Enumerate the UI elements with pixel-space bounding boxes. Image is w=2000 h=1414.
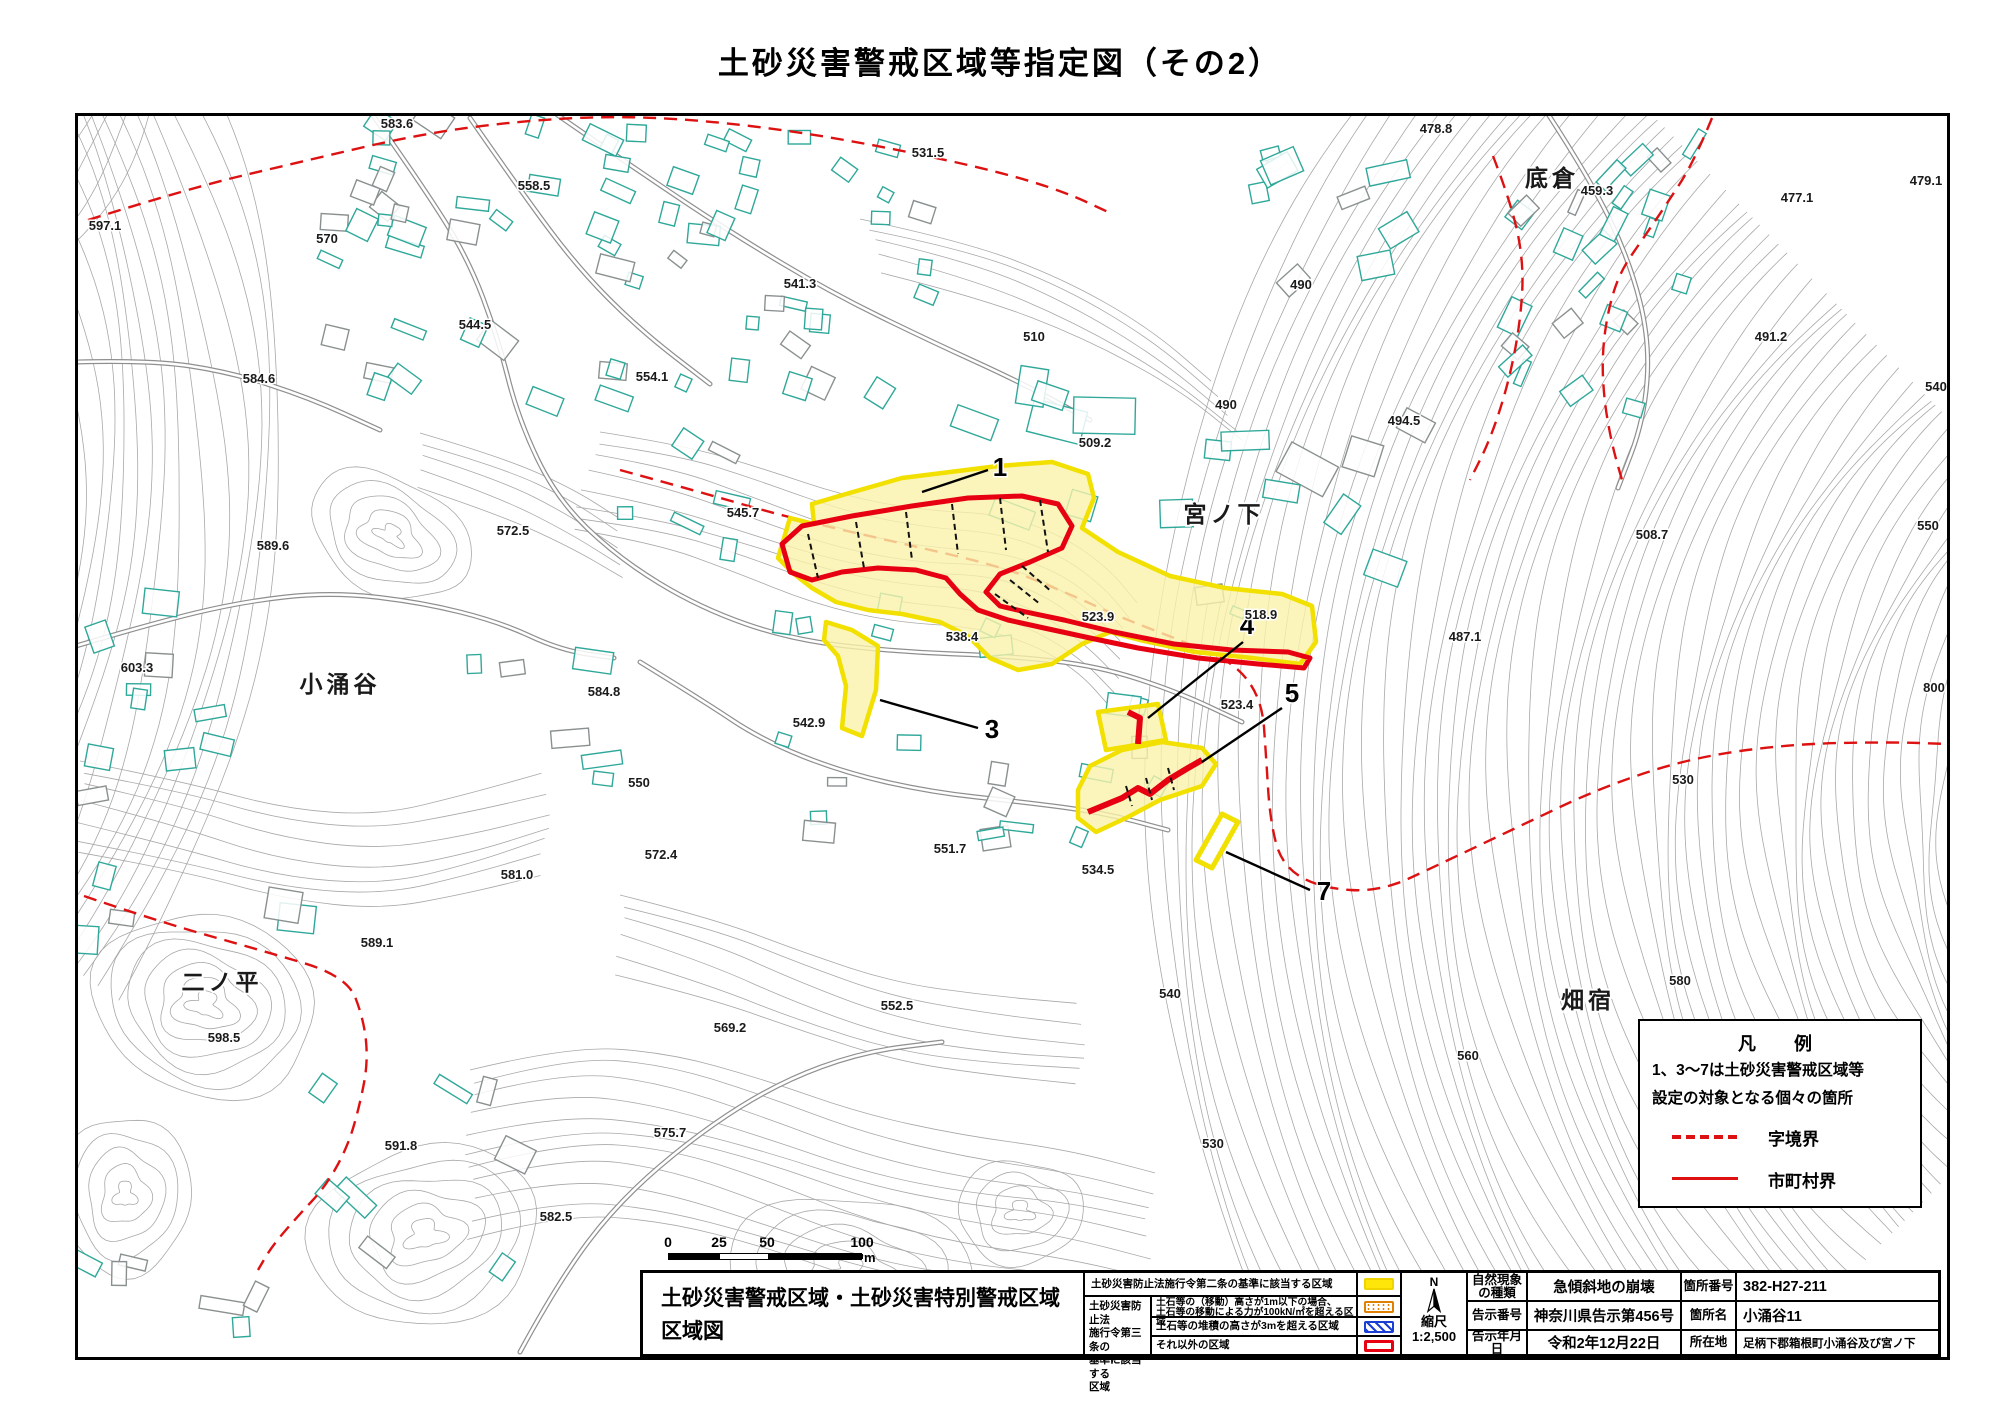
map-sheet: 土砂災害警戒区域等指定図（その2） 13457小涌谷二ノ平宮ノ下底倉畑宿583.… (0, 0, 2000, 1414)
site-number: 1 (993, 452, 1007, 482)
contour-line (1329, 116, 1639, 1357)
elevation-label: 598.5 (208, 1030, 241, 1045)
elevation-label: 582.5 (540, 1209, 573, 1224)
building (320, 213, 348, 231)
site-number: 3 (985, 714, 999, 744)
elevation-label: 603.3 (121, 660, 154, 675)
warning-zone-3 (824, 622, 878, 736)
contour-line (85, 784, 550, 847)
elevation-label: 581.0 (501, 867, 534, 882)
building (1364, 549, 1407, 587)
info-label-location: 所在地 (1682, 1331, 1737, 1354)
elevation-label: 509.2 (1079, 435, 1112, 450)
building (828, 778, 847, 787)
elevation-label: 584.8 (588, 684, 621, 699)
place-label: 畑宿 (1561, 987, 1615, 1013)
elevation-label: 540 (1159, 986, 1181, 1001)
contour-ring (391, 1203, 469, 1266)
building (672, 428, 704, 459)
contour-line (471, 1097, 1145, 1218)
elevation-label: 569.2 (714, 1020, 747, 1035)
building (243, 1281, 269, 1312)
building (526, 387, 564, 417)
contour-line (621, 934, 1084, 1058)
building (456, 196, 490, 211)
scale-tick-0: 0 (664, 1234, 672, 1250)
building (595, 385, 633, 412)
building (581, 750, 622, 769)
info-label-site-number: 箇所番号 (1682, 1273, 1737, 1302)
dashed-boundary-symbol (1672, 1135, 1738, 1139)
contour-line (474, 1060, 1153, 1194)
contour-line (620, 895, 1077, 1003)
building (164, 748, 196, 771)
building (586, 212, 619, 243)
contour-line (1929, 511, 1947, 1081)
contour-ring (89, 1147, 166, 1242)
building (735, 185, 758, 214)
building (796, 617, 813, 635)
elevation-label: 570 (316, 231, 338, 246)
building (582, 124, 623, 156)
elevation-label: 572.4 (645, 847, 678, 862)
building (1073, 397, 1135, 434)
site-leader-line (1202, 708, 1282, 762)
zone3-group-label-cell: 土砂災害防止法 施行令第三条の 基準に該当する 区域 (1085, 1297, 1152, 1354)
contour-ring (90, 914, 314, 1100)
scale-unit: m (864, 1250, 876, 1265)
elevation-label: 558.5 (518, 178, 551, 193)
map-legend-box: 凡 例 1、3〜7は土砂災害警戒区域等 設定の対象となる個々の箇所 字境界 市町… (1638, 1019, 1922, 1208)
place-label: 二ノ平 (182, 969, 263, 995)
yellow-zone-swatch (1364, 1278, 1394, 1290)
scale-tick-50: 50 (759, 1234, 775, 1250)
scale-bar-rule (668, 1253, 862, 1260)
building (1342, 436, 1384, 477)
building (626, 124, 646, 142)
elevation-label: 589.6 (257, 538, 290, 553)
elevation-label: 572.5 (497, 523, 530, 538)
elevation-label: 479.1 (1910, 173, 1943, 188)
elevation-label: 550 (628, 775, 650, 790)
contour-line (78, 116, 120, 300)
elevation-label: 490 (1290, 277, 1312, 292)
elevation-label: 583.6 (381, 116, 414, 131)
compass-scale-cell: N 縮尺 1:2,500 (1402, 1273, 1468, 1354)
building (78, 925, 99, 954)
building (746, 316, 759, 330)
contour-line (1177, 116, 1512, 1357)
warning-zone-5 (1078, 742, 1216, 832)
info-label-phenomenon: 自然現象の種類 (1468, 1273, 1528, 1302)
building (477, 1076, 497, 1105)
swatch-cell (1358, 1337, 1402, 1354)
contour-ring (372, 523, 405, 548)
building (618, 507, 633, 520)
orange-dotted-swatch (1364, 1301, 1394, 1313)
building (1337, 186, 1370, 209)
scale-tick-100: 100 (850, 1234, 873, 1250)
elevation-label: 551.7 (934, 841, 967, 856)
building (1378, 212, 1419, 249)
elevation-label: 540 (1925, 379, 1947, 394)
building (909, 201, 936, 224)
contour-line (1919, 502, 1947, 1093)
sheet-title-line2: 区域図 (661, 1315, 1083, 1348)
building (604, 154, 631, 172)
building (84, 744, 113, 771)
elevation-label: 523.4 (1221, 697, 1254, 712)
elevation-label: 510 (1023, 329, 1045, 344)
building (804, 308, 823, 330)
building (1366, 160, 1410, 186)
info-value-notice-number: 神奈川県告示第456号 (1528, 1302, 1682, 1331)
info-value-notice-date: 令和2年12月22日 (1528, 1331, 1682, 1354)
contour-ring (369, 1190, 485, 1284)
building (194, 705, 226, 722)
elevation-label: 508.7 (1636, 527, 1669, 542)
building-layer (78, 116, 1706, 1337)
elevation-label: 542.9 (793, 715, 826, 730)
elevation-label: 490 (1215, 397, 1237, 412)
elevation-label: 531.5 (912, 145, 945, 160)
building (489, 1253, 515, 1281)
contour-ring (128, 939, 285, 1075)
building (499, 660, 525, 677)
elevation-label: 544.5 (459, 317, 492, 332)
elevation-label: 538.4 (946, 629, 979, 644)
contour-ring (112, 1181, 138, 1205)
building (1497, 297, 1532, 337)
building (309, 1073, 337, 1103)
building (317, 250, 343, 268)
building (864, 377, 895, 409)
building (596, 254, 635, 282)
elevation-label: 534.5 (1082, 862, 1115, 877)
elevation-label: 591.8 (385, 1138, 418, 1153)
scale-label: 縮尺 (1421, 1314, 1447, 1329)
contour-ring (977, 1172, 1070, 1251)
contour-line (423, 445, 618, 531)
elevation-label: 580 (1669, 973, 1691, 988)
building (832, 157, 858, 182)
building (781, 331, 811, 359)
building (1623, 398, 1645, 418)
contour-line (616, 956, 1079, 1068)
building (1642, 189, 1671, 221)
sheet-title-line1: 土砂災害警戒区域・土砂災害特別警戒区域 (661, 1282, 1083, 1315)
elevation-label: 491.2 (1755, 329, 1788, 344)
elevation-label: 554.1 (636, 369, 669, 384)
elevation-label: 541.3 (784, 276, 817, 291)
building (359, 1236, 395, 1269)
building (78, 786, 109, 806)
building (200, 733, 234, 757)
building (765, 295, 785, 311)
contour-line (615, 975, 1075, 1084)
info-label-site-name: 箇所名 (1682, 1302, 1737, 1331)
elevation-label: 800 (1923, 680, 1945, 695)
building (131, 688, 148, 710)
building (346, 209, 379, 242)
scale-bar: 0 25 50 100 m (640, 1234, 900, 1270)
building (659, 201, 680, 226)
contour-line (420, 433, 620, 519)
building (232, 1317, 250, 1338)
elevation-label: 530 (1202, 1136, 1224, 1151)
contour-ring (403, 1219, 450, 1250)
building (490, 210, 513, 231)
contour-ring (312, 467, 472, 599)
elevation-label: 477.1 (1781, 190, 1814, 205)
building (199, 1296, 245, 1316)
contour-ring (78, 1120, 192, 1279)
building (573, 647, 614, 674)
scale-bar-segment (768, 1254, 863, 1259)
building (1620, 144, 1653, 176)
contour-ring (356, 510, 422, 558)
legend-item-label: 字境界 (1768, 1125, 1819, 1150)
building (871, 211, 890, 225)
building (803, 820, 836, 843)
building (551, 728, 590, 748)
building (494, 1136, 536, 1174)
elevation-label: 550 (1917, 518, 1939, 533)
legend-note-line1: 1、3〜7は土砂災害警戒区域等 (1652, 1058, 1920, 1084)
contour-ring (329, 1160, 521, 1314)
building (142, 588, 179, 617)
scale-tick-25: 25 (711, 1234, 727, 1250)
building (917, 259, 932, 276)
contour-line (1258, 116, 1578, 1357)
building (264, 887, 303, 923)
building (1221, 430, 1269, 451)
elevation-label: 584.6 (243, 371, 276, 386)
contour-line (1320, 116, 1624, 1357)
map-frame: 13457小涌谷二ノ平宮ノ下底倉畑宿583.6558.5597.1570544.… (75, 113, 1950, 1360)
elevation-label: 518.9 (1245, 607, 1278, 622)
contour-ring (101, 1164, 152, 1222)
red-outline-swatch (1364, 1340, 1394, 1352)
site-leader-line (1226, 852, 1310, 890)
building (670, 512, 703, 535)
elevation-label: 560 (1457, 1048, 1479, 1063)
contour-line (860, 219, 1211, 381)
info-value-site-number: 382-H27-211 (1737, 1273, 1938, 1302)
north-arrow-icon (1425, 1288, 1443, 1314)
elevation-label: 545.7 (727, 505, 760, 520)
building (877, 187, 894, 203)
contour-line (1202, 116, 1551, 1357)
building (1553, 228, 1582, 260)
contour-line (119, 116, 279, 1000)
info-value-location: 足柄下郡箱根町小涌谷及び宮ノ下 (1737, 1331, 1938, 1354)
building (720, 538, 737, 562)
contour-line (1343, 116, 1651, 1357)
contour-ring (344, 496, 441, 571)
elevation-label: 530 (1672, 772, 1694, 787)
zone3-group-line: 施行令第三条の (1089, 1327, 1150, 1354)
building (872, 624, 894, 640)
elevation-label: 478.8 (1420, 121, 1453, 136)
building (85, 620, 115, 653)
building (321, 324, 349, 350)
contour-line (78, 116, 230, 961)
elevation-label: 494.5 (1388, 413, 1421, 428)
building (391, 204, 409, 222)
swatch-cell (1358, 1318, 1402, 1337)
building (1357, 250, 1395, 281)
compass-north-label: N (1430, 1276, 1439, 1288)
legend-item-municipal-boundary: 市町村界 (1640, 1167, 1920, 1191)
building (1560, 375, 1593, 406)
swatch-cell (1358, 1297, 1402, 1318)
contour-ring (305, 1142, 537, 1324)
contour-line (1313, 116, 1612, 1357)
elevation-label: 459.3 (1581, 183, 1614, 198)
contour-line (79, 852, 541, 906)
contour-line (78, 116, 133, 313)
page-title: 土砂災害警戒区域等指定図（その2） (0, 38, 2000, 83)
building (1683, 129, 1707, 159)
solid-boundary-symbol (1672, 1177, 1738, 1180)
scale-bar-segment (669, 1254, 720, 1259)
place-label: 小涌谷 (300, 671, 381, 697)
building (378, 214, 393, 227)
sheet-title-cell: 土砂災害警戒区域・土砂災害特別警戒区域 区域図 (643, 1273, 1085, 1354)
site-number: 7 (1317, 876, 1331, 906)
building (434, 1074, 472, 1103)
elevation-label: 487.1 (1449, 629, 1482, 644)
zone3-row3-label-cell: それ以外の区域 (1152, 1337, 1358, 1354)
contour-ring (958, 1161, 1083, 1268)
info-label-notice-date: 告示年月日 (1468, 1331, 1528, 1354)
building (675, 374, 692, 392)
zone3-row2-label-cell: 土石等の堆積の高さが3mを超える区域 (1152, 1318, 1358, 1337)
site-number: 5 (1285, 678, 1299, 708)
legend-item-aza-boundary: 字境界 (1640, 1125, 1920, 1149)
contour-line (98, 116, 270, 986)
info-value-site-name: 小涌谷11 (1737, 1302, 1938, 1331)
building (391, 319, 426, 340)
building (950, 405, 998, 441)
building (1070, 827, 1089, 848)
building (739, 157, 760, 178)
building (112, 1261, 127, 1285)
building (1552, 308, 1583, 338)
zone3-row1-label-cell: 土石等の（移動）高さが1m以下の場合、 土石等の移動による力が100kN/㎡を超… (1152, 1297, 1358, 1318)
contour-line (1272, 116, 1587, 1357)
building (876, 139, 901, 157)
legend-item-label: 市町村界 (1768, 1167, 1836, 1192)
contour-line (1301, 116, 1603, 1357)
building (668, 250, 687, 268)
blue-hatched-swatch (1364, 1321, 1394, 1333)
building (592, 771, 613, 786)
contour-ring (330, 480, 457, 583)
contour-line (624, 907, 1081, 1024)
elevation-label: 597.1 (89, 218, 122, 233)
zone3-group-line: 土砂災害防止法 (1089, 1300, 1150, 1327)
contour-line (1145, 116, 1500, 1357)
contour-ring (111, 932, 301, 1090)
building (1324, 494, 1361, 534)
building (984, 787, 1015, 817)
place-label: 底倉 (1525, 165, 1579, 191)
zone2-label-cell: 土砂災害防止法施行令第二条の基準に該当する区域 (1085, 1273, 1358, 1297)
swatch-cell (1358, 1273, 1402, 1297)
contour-line (78, 116, 179, 946)
legend-title: 凡 例 (1640, 1030, 1920, 1056)
building (988, 761, 1009, 786)
building (708, 441, 740, 463)
site-leader-line (880, 700, 978, 728)
contour-line (420, 470, 620, 565)
building (1612, 186, 1633, 209)
building (1672, 274, 1691, 294)
elevation-label: 589.1 (361, 935, 394, 950)
zone3-group-line: 区域 (1089, 1381, 1150, 1395)
elevation-label: 552.5 (881, 998, 914, 1013)
elevation-label: 575.7 (654, 1125, 687, 1140)
building (897, 735, 921, 751)
contour-ring (78, 1134, 178, 1262)
zone3-group-line: 基準に該当する (1089, 1354, 1150, 1381)
building (1263, 479, 1300, 503)
contour-line (80, 761, 542, 813)
info-value-phenomenon: 急傾斜地の崩壊 (1528, 1273, 1682, 1302)
building (447, 219, 480, 245)
building (729, 358, 749, 382)
building (601, 178, 636, 203)
place-label: 宮ノ下 (1184, 501, 1265, 527)
contour-line (78, 841, 541, 892)
info-label-notice-number: 告示番号 (1468, 1302, 1528, 1331)
scale-value: 1:2,500 (1412, 1329, 1456, 1344)
title-block: 土砂災害警戒区域・土砂災害特別警戒区域 区域図 土砂災害防止法施行令第二条の基準… (640, 1270, 1941, 1357)
contour-line (475, 1076, 1149, 1208)
building (78, 1245, 102, 1277)
building (773, 611, 793, 635)
legend-note-line2: 設定の対象となる個々の箇所 (1652, 1086, 1920, 1112)
building (467, 654, 482, 673)
elevation-label: 523.9 (1082, 609, 1115, 624)
